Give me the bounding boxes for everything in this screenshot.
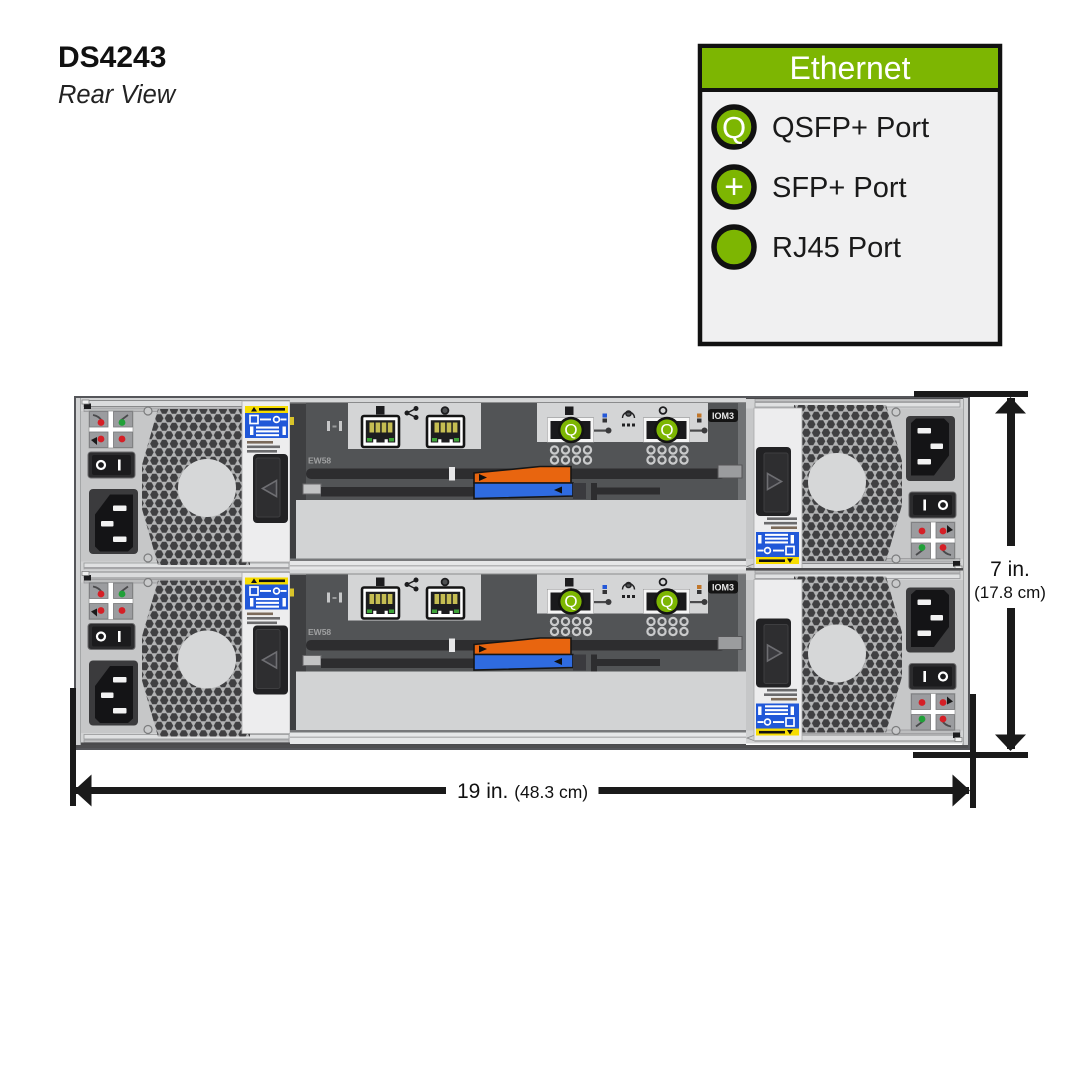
svg-text:Q: Q [722, 110, 746, 145]
svg-text:+: + [724, 168, 744, 206]
svg-text:Ethernet: Ethernet [790, 50, 911, 86]
svg-text:RJ45 Port: RJ45 Port [772, 232, 901, 264]
svg-text:7 in.: 7 in. [990, 558, 1030, 581]
svg-text:QSFP+ Port: QSFP+ Port [772, 112, 929, 144]
svg-text:Rear View: Rear View [58, 81, 177, 109]
svg-text:19 in. (48.3 cm): 19 in. (48.3 cm) [457, 780, 588, 803]
svg-text:(17.8 cm): (17.8 cm) [974, 583, 1046, 602]
svg-text:DS4243: DS4243 [58, 41, 166, 74]
svg-text:SFP+ Port: SFP+ Port [772, 172, 907, 204]
